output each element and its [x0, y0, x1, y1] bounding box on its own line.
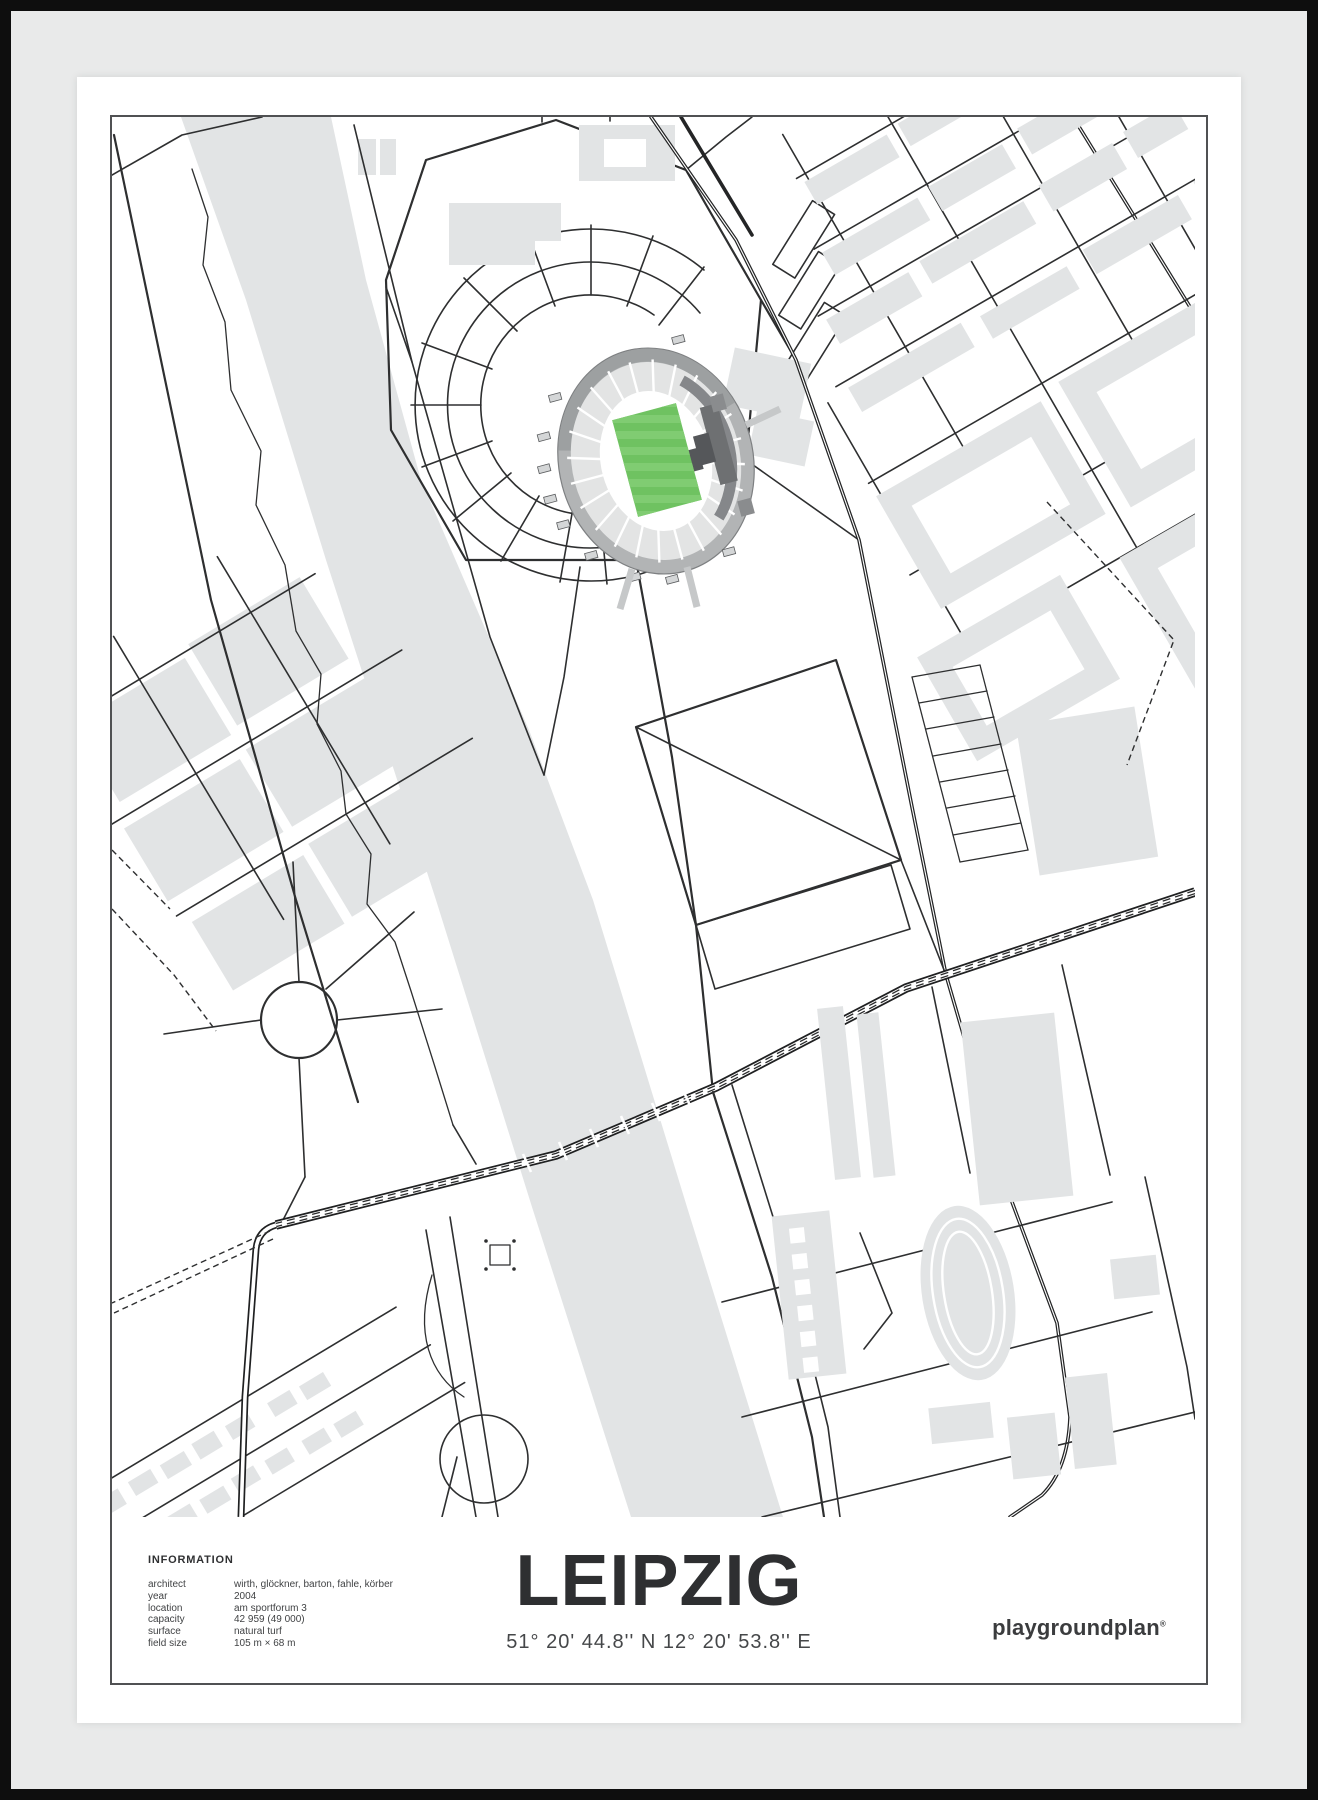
frame-mat: INFORMATION architectwirth, glöckner, ba…	[11, 11, 1307, 1789]
city-map	[112, 117, 1195, 1517]
residential-cluster	[112, 1297, 465, 1517]
registered-mark: ®	[1160, 1620, 1166, 1629]
page-title: LEIPZIG	[112, 1545, 1206, 1617]
festwiese-square	[636, 560, 946, 1092]
brand-logo: playgroundplan®	[992, 1615, 1166, 1641]
running-track	[909, 1199, 1027, 1387]
poster-sheet: INFORMATION architectwirth, glöckner, ba…	[77, 77, 1241, 1723]
print-area: INFORMATION architectwirth, glöckner, ba…	[110, 115, 1208, 1685]
picture-frame: INFORMATION architectwirth, glöckner, ba…	[0, 0, 1318, 1800]
grandstand	[772, 1210, 847, 1379]
poster-mockup: INFORMATION architectwirth, glöckner, ba…	[0, 0, 1318, 1800]
